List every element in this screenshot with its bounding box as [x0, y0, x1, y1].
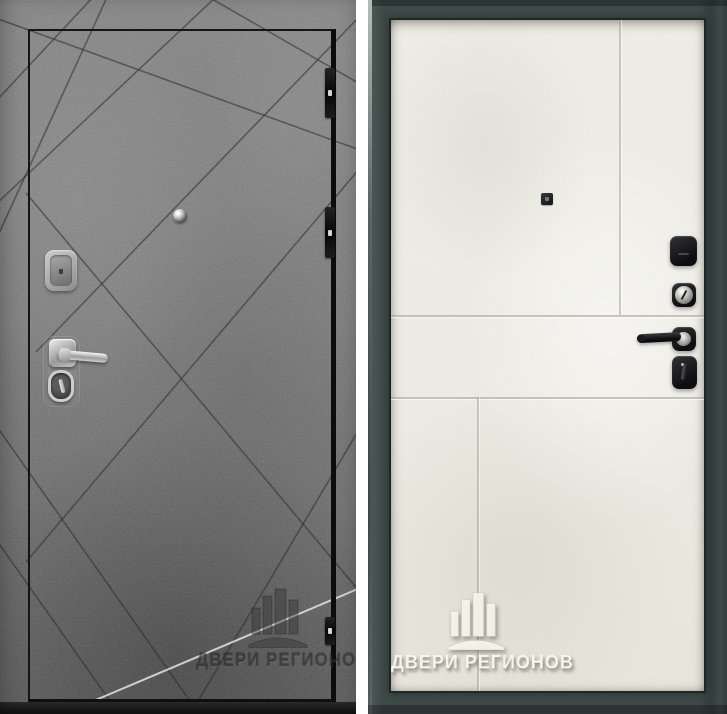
- key-turn-icon: [58, 379, 65, 394]
- brand-watermark: ДВЕРИ РЕГИОНОВ: [196, 584, 356, 671]
- door-leaf-outline: [28, 29, 336, 702]
- concrete-grain-texture: [0, 0, 356, 714]
- hinge-bottom-icon: [325, 617, 335, 645]
- keyhole-icon: [48, 370, 74, 402]
- panel-groove-horizontal-upper: [391, 315, 704, 317]
- keyhole-dot: [59, 269, 63, 274]
- hinge-pin: [328, 628, 332, 634]
- brand-logo-icon: [446, 588, 506, 650]
- brand-logo-icon: [248, 584, 308, 648]
- lever-handle-icon: [58, 350, 109, 363]
- handle-backplate: [43, 336, 80, 407]
- thumbturn-icon: [672, 356, 697, 389]
- cylinder-guard-icon: [45, 250, 77, 291]
- peephole-icon: [173, 209, 187, 223]
- interior-door-panel: ДВЕРИ РЕГИОНОВ: [391, 20, 704, 691]
- handle-rosette-icon: [49, 339, 76, 367]
- panel-groove-vertical-top: [619, 20, 621, 315]
- hinge-pin: [328, 230, 332, 236]
- panel-groove-vertical-bottom: [477, 397, 479, 691]
- peephole-icon: [541, 193, 553, 205]
- cylinder-guard-recess: [50, 255, 72, 286]
- lock-cover-icon: [670, 236, 697, 266]
- threshold-shadow: [0, 702, 356, 714]
- hinge-middle-icon: [325, 207, 335, 258]
- brand-watermark-text: ДВЕРИ РЕГИОНОВ: [196, 650, 356, 671]
- brand-watermark-text: ДВЕРИ РЕГИОНОВ: [391, 651, 561, 673]
- panel-groove-horizontal-lower: [391, 397, 704, 399]
- exterior-view-photo: ДВЕРИ РЕГИОНОВ: [0, 0, 356, 714]
- key-cylinder-icon: [672, 283, 696, 307]
- door-product-photo: ДВЕРИ РЕГИОНОВ: [0, 0, 727, 714]
- hinge-top-icon: [325, 68, 335, 118]
- panel-grain-texture: [391, 20, 704, 691]
- ray-groove-pattern: [0, 0, 356, 714]
- interior-view-photo: ДВЕРИ РЕГИОНОВ: [368, 0, 727, 714]
- frame-edge-highlight: [368, 0, 372, 714]
- photo-divider: [356, 0, 368, 714]
- thumbturn-knob: [681, 364, 689, 381]
- hinge-pin: [328, 90, 332, 96]
- brand-watermark: ДВЕРИ РЕГИОНОВ: [391, 588, 561, 673]
